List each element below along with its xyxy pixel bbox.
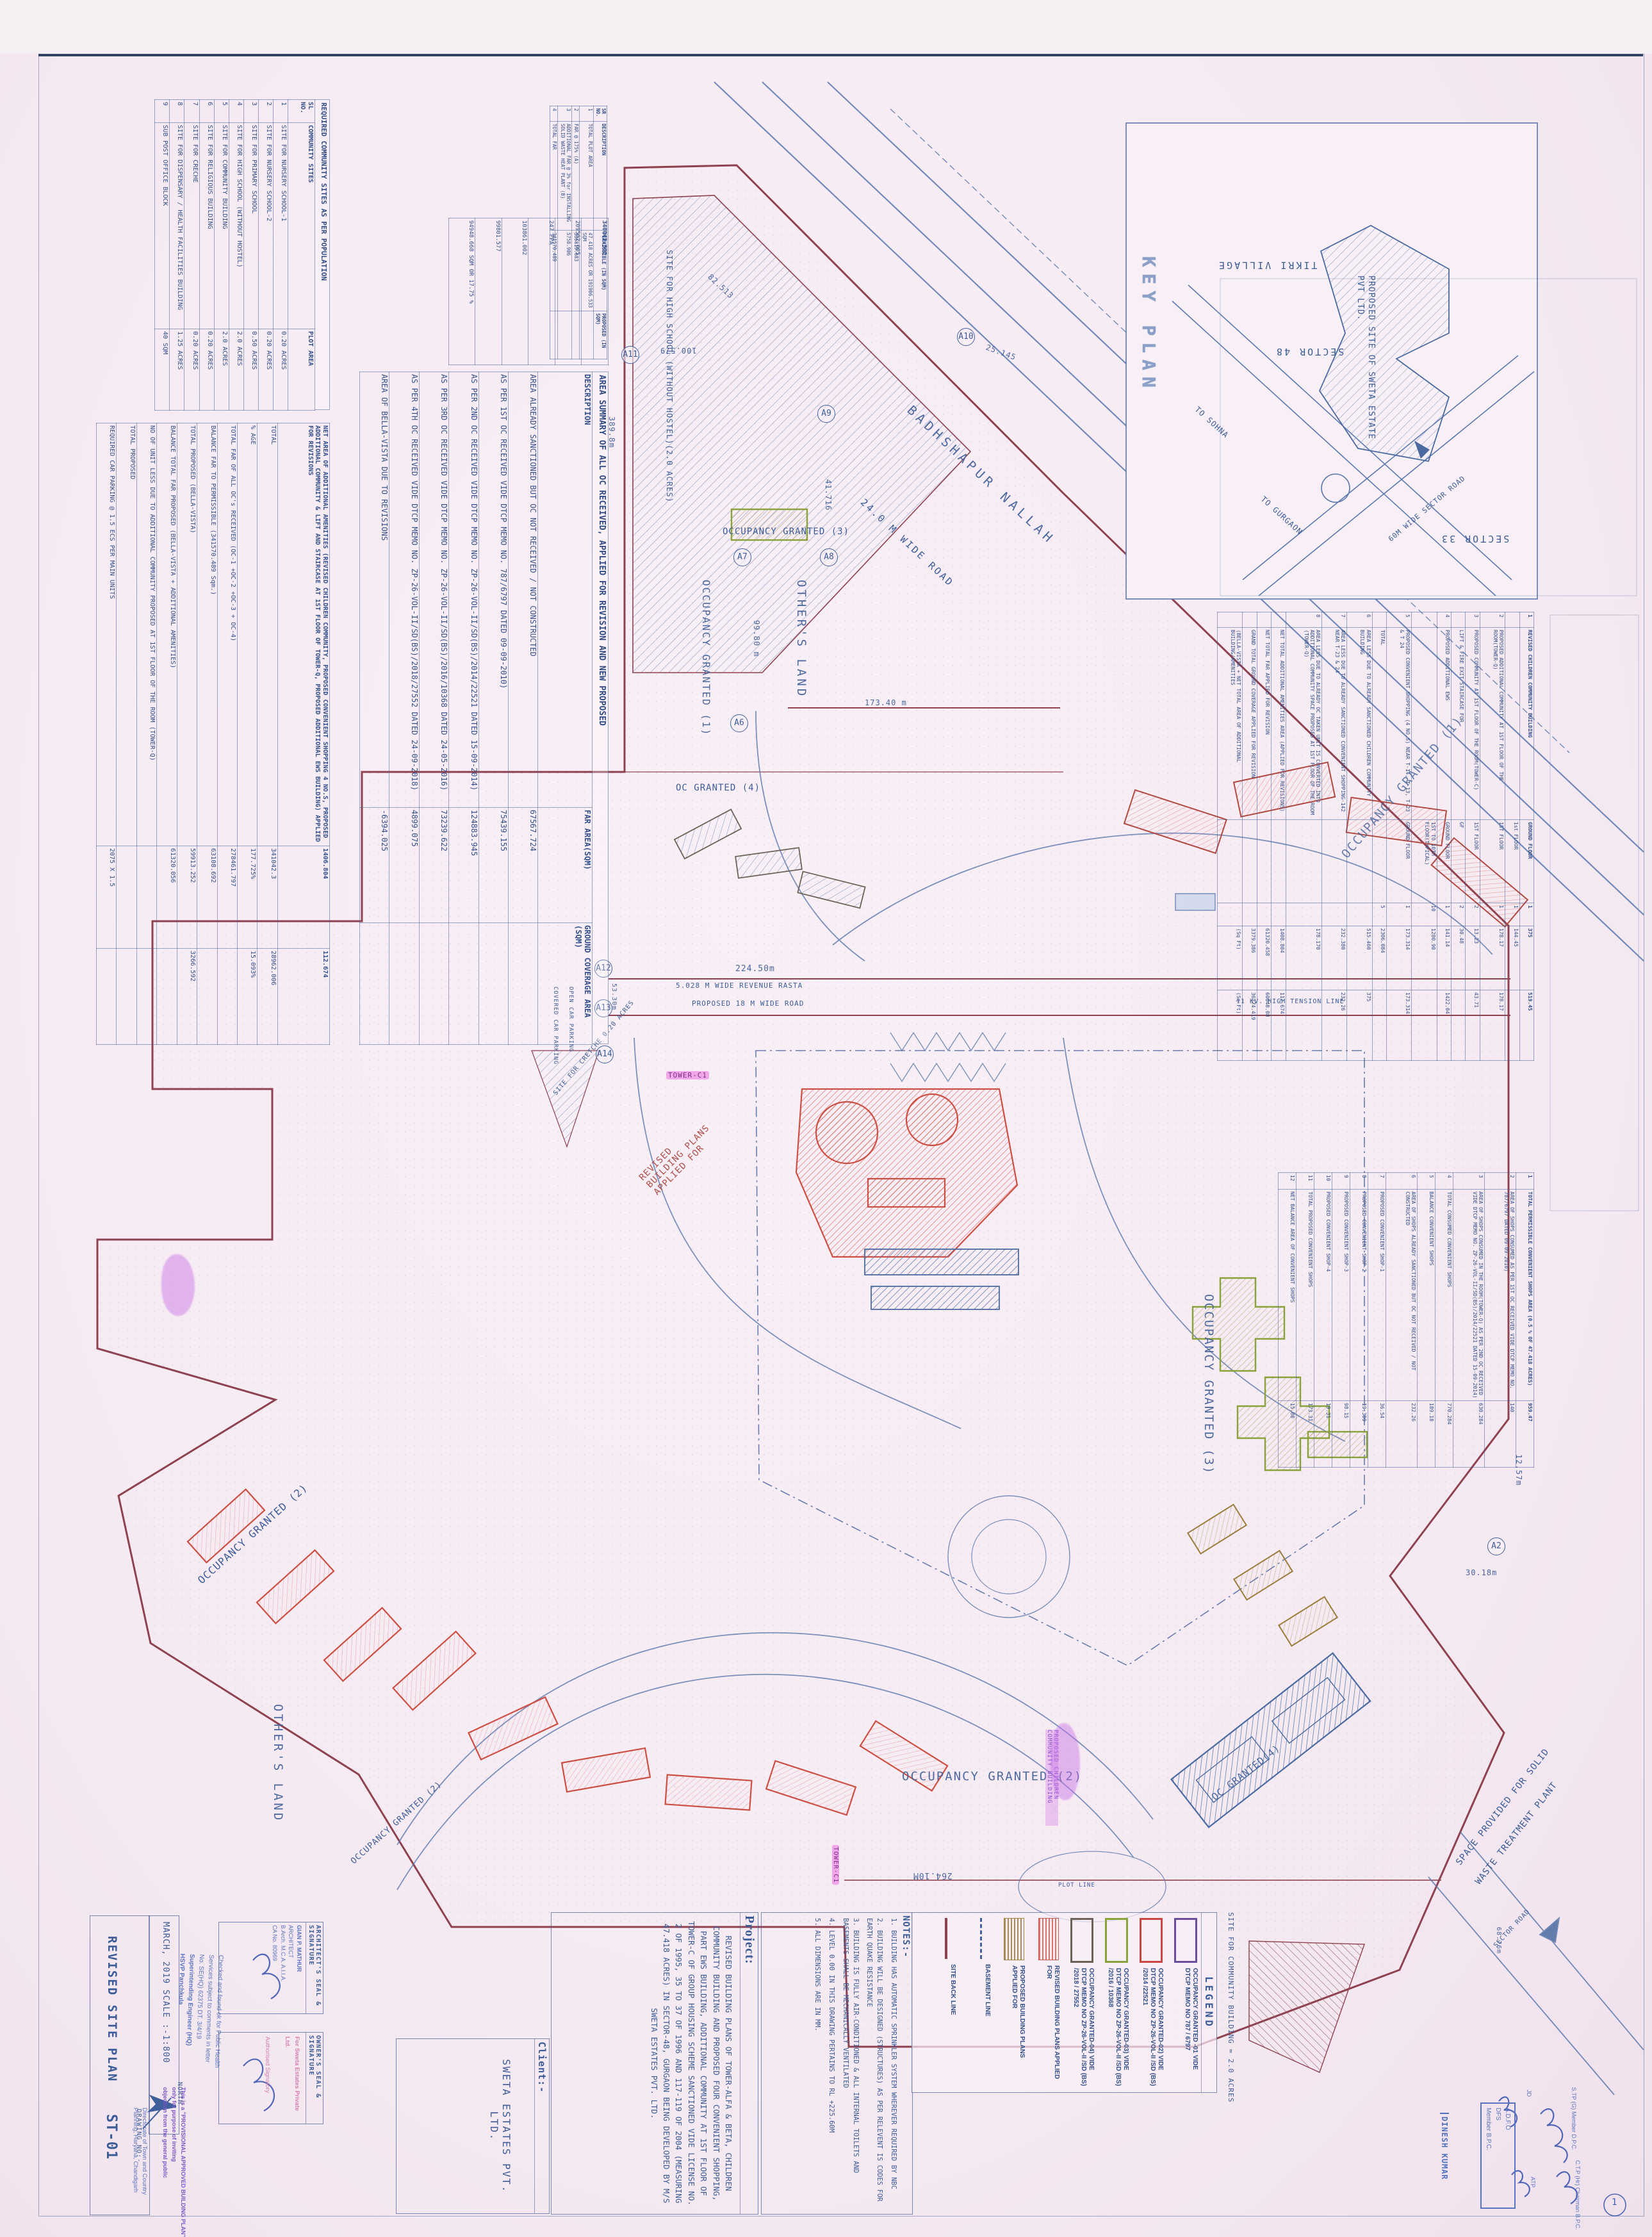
- legend-swatch-proposed: [1004, 1918, 1024, 1960]
- date-scale: MARCH, 2019 SCALE :-1:800: [161, 1922, 170, 2063]
- note-5: 5. ALL DIMENSIONS ARE IN MM.: [812, 1918, 822, 2209]
- legend-entry-proposed: PROPOSED BUILDING PLANS APPLIED FOR: [991, 1918, 1026, 2087]
- key-plan: [1126, 123, 1537, 599]
- legend-swatch-siteback: [945, 1918, 947, 1959]
- marker-a10: A10: [957, 328, 975, 346]
- table-community-sites: REQUIRED COMMUNITY SITES AS PER POPULATI…: [154, 99, 330, 410]
- label-18m-road: PROPOSED 18 M WIDE ROAD: [692, 999, 804, 1008]
- label-revenue-rasta: 5.028 M WIDE REVENUE RASTA: [676, 981, 803, 990]
- label-tower-c1: TOWER-C1: [666, 1071, 709, 1079]
- note-3: 3. BUILDING IS FULLY AIR-CONDITIONED & A…: [840, 1918, 860, 2209]
- label-high-school-site: SITE FOR HIGH SCHOOL (WITHOUT HOSTEL)(2.…: [665, 250, 674, 503]
- dtcp-stamp: Directorate of Town and CountryPlanning,…: [131, 2108, 149, 2217]
- client-label: Client:-: [534, 2039, 549, 2213]
- dim-30: 30.18m: [1466, 1568, 1497, 1577]
- legend-swatch-oc1: [1174, 1918, 1197, 1963]
- highlight-blob-left: [161, 1254, 195, 1316]
- dim-264: 264.10M: [913, 1871, 953, 1880]
- table-area-stats: 340042.300209502.005247 PPA103861.002998…: [448, 218, 609, 365]
- legend-swatch-basement: [980, 1918, 982, 1959]
- table-shops: 1TOTAL PERMISSIBLE CONVENIENT SHOPS AREA…: [1278, 1172, 1534, 1467]
- architect-seal-label: ARCHITECT'S SEAL & SIGNATURE: [306, 1922, 323, 2013]
- architect-seal-box: ARCHITECT'S SEAL & SIGNATURE GIAN P. MAT…: [218, 1922, 323, 2014]
- project-label: Project:: [740, 1913, 758, 2214]
- label-plot-line: PLOT LINE: [1058, 1882, 1095, 1889]
- note-1: 1. BUILDING HAS AUTOMATIC SPRINKLER SYST…: [888, 1918, 898, 2209]
- jd-stamp: JD: [1526, 2090, 1532, 2097]
- stp-stamp: S.TP (G) Member D.P.C.: [1571, 2087, 1577, 2151]
- project-box: Project: REVISED BUILDING PLANS OF TOWER…: [551, 1912, 758, 2215]
- dinesh-kumar-stamp: DINESH KUMAR: [1440, 2113, 1449, 2180]
- table-left-summary: NET AREA OF ADDITIONAL AMENITIES (REVISE…: [96, 423, 330, 1044]
- atp-stamp: ATP: [1530, 2177, 1536, 2188]
- marker-a11: A11: [621, 346, 639, 364]
- label-others-land-2: OTHER'S LAND: [271, 1704, 285, 1823]
- legend-entry-oc2: OCCUPANCY GRANTED-02) VIDE DTCP MEMO NO …: [1129, 1918, 1164, 2087]
- dim-100: 100.579: [660, 346, 697, 355]
- dim-68: 68.76m: [1495, 1927, 1502, 1954]
- legend-entry-basement: BASEMENT LINE: [956, 1918, 991, 2087]
- label-oc4-top: OC GRANTED (4): [676, 783, 760, 793]
- label-occupancy-3-right: OCCUPANCY GRANTED (3): [1202, 1294, 1216, 1475]
- dim-224: 224.50m: [735, 964, 775, 974]
- marker-a9: A9: [817, 405, 835, 423]
- legend-box: LEGEND OCCUPANCY GRANTED -01 VIDE DTCP M…: [912, 1912, 1217, 2093]
- dim-99: 99.80 m: [752, 620, 761, 657]
- key-plan-site-label: PROPOSED SITE OF SWETA ESTATE PVT LTD.: [1354, 275, 1376, 448]
- ctp-stamp: C.T.P (Hr) Chairman B.P.C.: [1574, 2160, 1581, 2230]
- marker-a7: A7: [733, 548, 751, 566]
- key-plan-title: KEY PLAN: [1138, 256, 1159, 394]
- key-plan-sector33: SECTOR 33: [1440, 533, 1509, 545]
- legend-swatch-oc3: [1105, 1918, 1128, 1963]
- dim-173: 173.40 m: [865, 698, 907, 707]
- sector-road-lines: [1428, 1832, 1644, 2095]
- owner-seal-label: OWNER'S SEAL & SIGNATURE: [306, 2033, 323, 2124]
- legend-entry-revised: REVISED BUILDING PLANS APPLIED FOR: [1026, 1918, 1060, 2087]
- legend-swatch-oc2: [1140, 1918, 1163, 1963]
- community-building-site: [1249, 1941, 1364, 2072]
- legend-entry-oc1: OCCUPANCY GRANTED -01 VIDE DTCP MEMO NO …: [1164, 1918, 1198, 2087]
- legend-title: LEGEND: [1201, 1913, 1216, 2092]
- highlight-blob-children: [1051, 1723, 1080, 1800]
- dim-41: 41.716: [824, 479, 833, 511]
- marker-a14: A14: [596, 1045, 614, 1063]
- legend-entry-oc4: OCCUPANCY GRANTED-04) VIDE DTCP MEMO NO …: [1060, 1918, 1095, 2087]
- provisional-approval-stamp: This is a "PROVISIONAL APPROVED BUILDING…: [160, 2087, 187, 2237]
- table-area-summary: AREA SUMMARY OF ALL OC RECEIVED, APPLIED…: [359, 372, 609, 1044]
- project-text: REVISED BUILDING PLANS OF TOWER-ALFA & B…: [642, 1913, 740, 2214]
- label-occupancy-1-arm: OCCUPANCY GRANTED (1): [700, 580, 712, 736]
- dim-389: 389.8m: [607, 416, 616, 448]
- scanned-site-plan-sheet: OCCUPANCY GRANTED (1) OCCUPANCY GRANTED …: [0, 0, 1652, 2237]
- marker-a2: A2: [1487, 1537, 1505, 1555]
- label-tower-c1-b: TOWER-C1: [832, 1845, 839, 1885]
- legend-swatch-oc4: [1070, 1918, 1093, 1963]
- marker-a6: A6: [730, 714, 748, 732]
- label-occupancy-3-arm: OCCUPANCY GRANTED (3): [723, 527, 849, 537]
- marker-a8: A8: [820, 548, 838, 566]
- legend-entry-siteback: SITE BACK LINE: [922, 1918, 956, 2087]
- circled-mark: 1: [1612, 2197, 1617, 2208]
- drawing-title: REVISED SITE PLAN: [105, 1936, 119, 2082]
- legend-swatch-revised: [1038, 1918, 1059, 1960]
- notes-label: NOTES:-: [899, 1913, 912, 2214]
- legend-entry-oc3: OCCUPANCY GRANTED-03) VIDE DTCP MEMO NO …: [1095, 1918, 1129, 2087]
- client-box: Client:- SWETA ESTATES PVT. LTD.: [396, 2038, 550, 2214]
- client-name: SWETA ESTATES PVT. LTD.: [466, 2039, 534, 2213]
- label-others-land-1: OTHER'S LAND: [794, 580, 808, 698]
- note-4: 4. LEVEL 0.00 IN THIS DRAWING PERTAINS T…: [826, 1918, 837, 2209]
- owner-seal-box: OWNER'S SEAL & SIGNATURE For Sweta Estat…: [218, 2032, 323, 2124]
- community-building-note: SITE FOR COMMUNITY BUILDING = 2.0 ACRES: [1227, 1912, 1235, 2102]
- key-plan-sector48: SECTOR 48: [1275, 346, 1344, 357]
- adfo-stamp: A.D.F.ODFSMember B.P.C.: [1480, 2102, 1516, 2209]
- key-plan-tikri: TIKRI VILLAGE: [1217, 259, 1317, 271]
- drawing-code: ST-01: [103, 2114, 119, 2159]
- note-2: 2. BUILDING WILL BE DESIGNED (STRUCTURES…: [864, 1918, 885, 2209]
- table-amenities: 1REVISED CHILDREN COMMUNITY BUILDINGGROU…: [1217, 612, 1534, 1060]
- notes-box: NOTES:- 1. BUILDING HAS AUTOMATIC SPRINK…: [761, 1912, 913, 2215]
